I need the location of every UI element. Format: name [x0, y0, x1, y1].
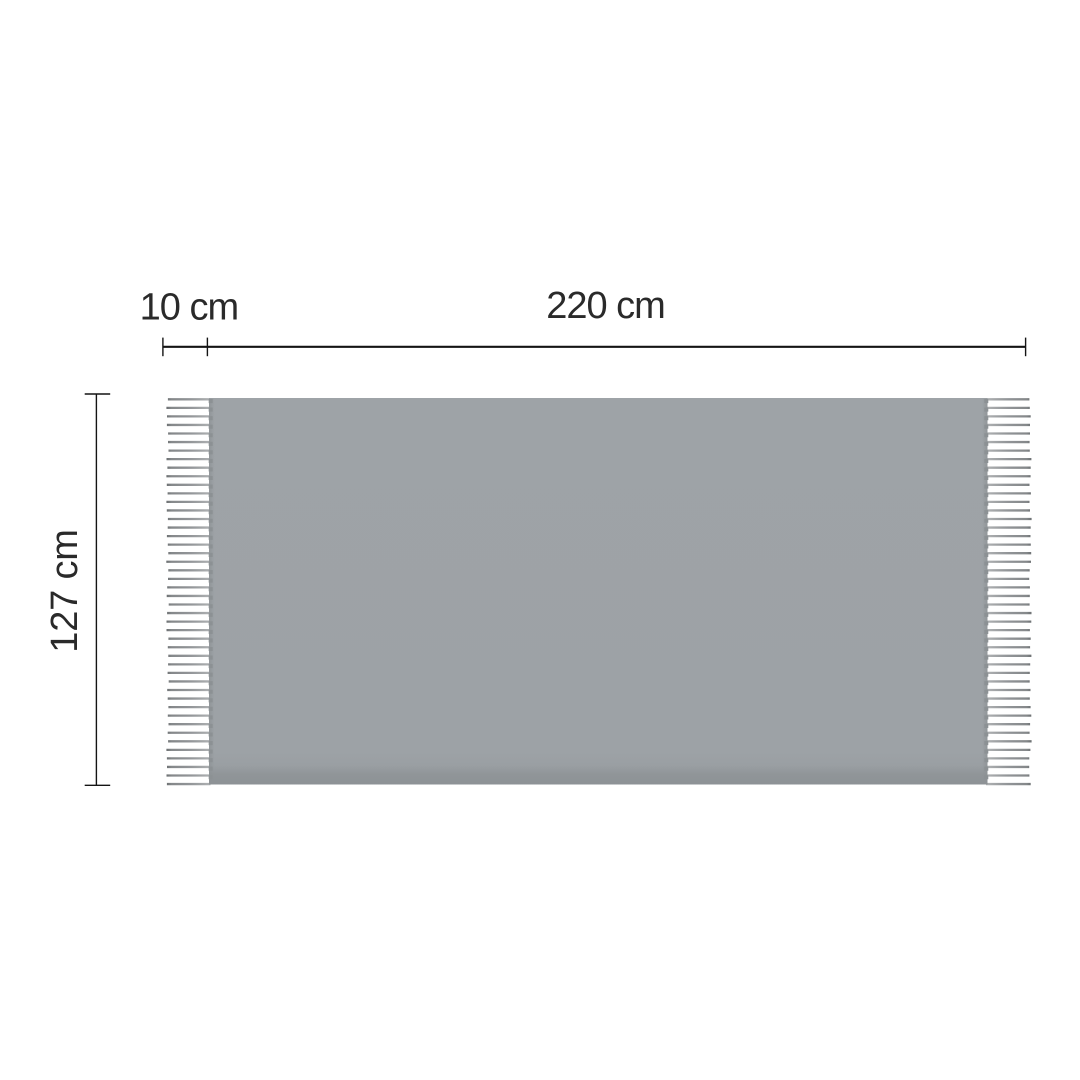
svg-text:10 cm: 10 cm	[140, 287, 238, 329]
svg-text:220 cm: 220 cm	[546, 285, 665, 327]
svg-text:127 cm: 127 cm	[44, 529, 86, 652]
